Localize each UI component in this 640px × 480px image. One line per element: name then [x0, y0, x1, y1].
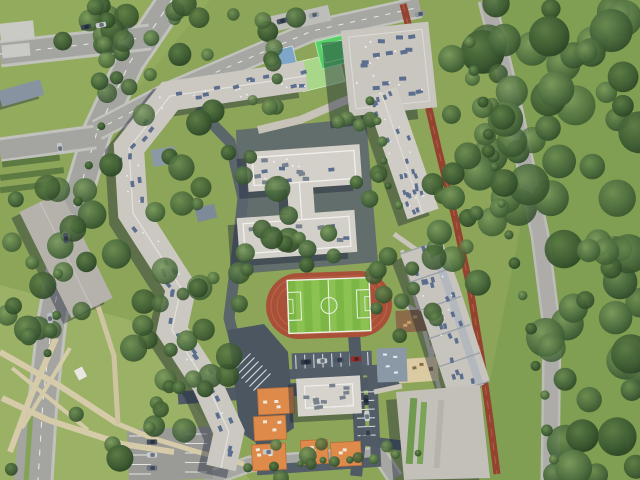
- building-northeast-ac-units-2: [378, 39, 385, 43]
- site-plan-render: [0, 0, 640, 480]
- trees-courtyard-17: [265, 176, 291, 202]
- trees-topleft-lawn-1: [97, 37, 113, 53]
- trees-top-band-15: [98, 51, 115, 68]
- trees-center-east-5: [407, 282, 420, 295]
- trees-east-strip-5: [490, 169, 518, 197]
- trees-park-16: [216, 343, 243, 370]
- trees-courts-west-5: [272, 73, 283, 84]
- trees-forest-northeast-36: [612, 95, 634, 117]
- tree-row-east-road-2: [478, 97, 489, 108]
- trees-snake-tail-west-3: [197, 381, 214, 398]
- trees-forest-northeast-35: [529, 16, 570, 57]
- building-snake-ac-units-34: [168, 318, 172, 324]
- trees-warehouse-8: [76, 252, 97, 273]
- trees-courtyard-8: [221, 145, 236, 160]
- trees-east-strip-15: [469, 206, 483, 220]
- playground-orange-1-equipment-0: [274, 400, 278, 403]
- playground-beige-equipment-0: [420, 363, 424, 366]
- trees-park-5: [143, 421, 155, 433]
- kindergarten-ac-units-2: [321, 400, 327, 404]
- tree-row-slab-west-0: [365, 96, 374, 105]
- trees-warehouse-3: [72, 302, 90, 320]
- trees-courtyard-21: [145, 202, 165, 222]
- playground-gray: [376, 347, 407, 382]
- tree-row-south-road-2: [297, 461, 304, 468]
- trees-school-south-5: [241, 263, 254, 276]
- building-snake-ac-units-45: [137, 177, 141, 183]
- trees-east-strip-19: [422, 245, 447, 270]
- trees-courtyard-23: [152, 258, 179, 285]
- tree-row-slab-west-1: [373, 117, 381, 125]
- building-northeast-ac-units-13: [362, 60, 369, 64]
- playground-gray-marks-1: [383, 353, 387, 355]
- viewport: [0, 0, 640, 480]
- trees-courts-west-4: [262, 99, 278, 115]
- tree-row-south-road-6: [391, 450, 400, 459]
- trees-courtyard-19: [170, 191, 194, 215]
- trees-top-band-2: [255, 12, 272, 29]
- trees-forest-northeast-7: [541, 0, 560, 19]
- trees-center-east-4: [392, 328, 407, 343]
- school-ac-units-bottom-4: [296, 224, 303, 228]
- building-snake-ac-units-23: [299, 84, 305, 88]
- trees-east-strip-18: [482, 144, 496, 158]
- trees-courtyard-2: [231, 295, 248, 312]
- trees-top-band-19: [189, 7, 210, 28]
- car-12-glass: [320, 359, 325, 363]
- trees-forest-northeast-30: [608, 62, 639, 93]
- trees-school-east-4: [373, 171, 385, 183]
- trees-forest-northeast-34: [538, 71, 575, 108]
- tree-row-south-road-4: [346, 456, 353, 463]
- trees-school-south-1: [320, 225, 337, 242]
- trees-courtyard-13: [189, 278, 208, 297]
- trees-top-band-9: [227, 8, 240, 21]
- trees-forest-southeast-6: [554, 368, 577, 391]
- car-15-glass: [364, 398, 368, 403]
- trees-park-19: [172, 418, 196, 442]
- trees-warehouse-16: [102, 239, 131, 268]
- trees-warehouse-19: [5, 297, 22, 314]
- tree-row-left-road-4: [53, 269, 63, 279]
- trees-courts-west-0: [247, 95, 257, 105]
- trees-courtyard-7: [186, 110, 212, 136]
- trees-courtyard-15: [279, 206, 298, 225]
- playground-gray-marks-3: [394, 371, 398, 373]
- tree-row-left-road-0: [98, 122, 106, 130]
- trees-school-south-9: [260, 226, 283, 249]
- trees-forest-northeast-38: [599, 180, 636, 217]
- car-13: [334, 357, 345, 363]
- trees-park-15: [132, 315, 153, 336]
- trees-topleft-lawn-5: [113, 30, 135, 52]
- trees-warehouse-1: [25, 256, 39, 270]
- trees-east-strip-13: [490, 105, 515, 130]
- tree-row-east-road-7: [509, 257, 521, 269]
- trees-courtyard-5: [177, 288, 190, 301]
- car-7: [47, 313, 53, 324]
- trees-park-12: [43, 323, 58, 338]
- kindergarten-ac-units-0: [303, 396, 309, 400]
- trees-courts-west-3: [265, 55, 282, 72]
- tree-row-east-road-3: [483, 129, 494, 140]
- playground-orange-2-equipment-0: [263, 420, 267, 423]
- trees-center-east-7: [369, 261, 387, 279]
- tree-row-slab-west-3: [380, 157, 388, 165]
- trees-snake-tail-west-2: [153, 401, 169, 417]
- trees-snake-tail-west-4: [173, 381, 186, 394]
- trees-forest-southeast-22: [577, 387, 602, 412]
- car-11-glass: [304, 360, 309, 364]
- tree-row-east-road-10: [531, 361, 541, 371]
- trees-forest-northeast-18: [535, 115, 561, 141]
- school-ac-units-top-6: [296, 170, 303, 174]
- trees-warehouse-18: [99, 153, 122, 176]
- trees-forest-southeast-23: [537, 333, 566, 362]
- tree-row-left-road-5: [52, 311, 61, 320]
- trees-center-east-8: [371, 302, 383, 314]
- trees-south-band-1: [381, 440, 393, 452]
- trees-topleft-lawn-3: [91, 72, 109, 90]
- trees-courtyard-10: [133, 104, 155, 126]
- kindergarten-ac-units-1: [343, 391, 349, 395]
- trees-topleft-lawn-7: [110, 71, 123, 84]
- trees-school-south-0: [326, 249, 341, 264]
- car-11: [301, 359, 312, 365]
- trees-school-south-6: [299, 257, 314, 272]
- trees-courtyard-11: [191, 177, 212, 198]
- trees-topleft-lawn-6: [144, 68, 157, 81]
- car-15: [363, 395, 369, 406]
- trees-school-east-6: [350, 176, 363, 189]
- trees-east-strip-22: [440, 185, 465, 210]
- trees-center-east-0: [375, 286, 393, 304]
- trees-forest-northeast-26: [580, 154, 606, 180]
- parking-ticks-east-4: [357, 426, 375, 427]
- trees-east-strip-24: [427, 220, 452, 245]
- trees-courtyard-14: [234, 166, 253, 185]
- trees-south-band-2: [270, 439, 282, 451]
- trees-top-band-21: [168, 43, 191, 66]
- building-northeast-ac-units-12: [409, 92, 416, 96]
- car-12: [317, 358, 328, 364]
- car-6: [63, 233, 69, 244]
- trees-south-band-5: [305, 458, 316, 469]
- playground-orange-2: [253, 415, 286, 441]
- school-ac-units-top-blue-3: [328, 167, 334, 171]
- tree-row-slab-west-2: [377, 136, 387, 146]
- tree-row-east-road-0: [464, 36, 476, 48]
- concrete-pad-topleft-a: [0, 20, 35, 41]
- building-northeast-ac-units-14: [399, 76, 406, 80]
- building-northeast-ac-units-11: [396, 35, 403, 39]
- car-17: [365, 427, 371, 438]
- car-18-glass: [266, 450, 271, 454]
- car-6-glass: [64, 236, 68, 241]
- playground-orange-5-equipment-1: [343, 448, 347, 451]
- school-ac-units-top-blue-2: [279, 167, 285, 171]
- trees-top-band-13: [286, 7, 306, 27]
- road-west-lower: [0, 137, 95, 150]
- trees-school-south-8: [236, 243, 255, 262]
- car-18: [263, 449, 274, 455]
- tree-row-slab-west-4: [385, 183, 392, 190]
- trees-park-2: [20, 328, 38, 346]
- car-10: [147, 465, 157, 470]
- trees-warehouse-12: [2, 232, 22, 252]
- playground-mulch-equipment-1: [403, 324, 407, 327]
- playground-orange-3-equipment-2: [257, 453, 261, 456]
- trees-park-7: [69, 407, 84, 422]
- trees-warehouse-17: [8, 191, 24, 207]
- trees-east-strip-6: [442, 105, 461, 124]
- trees-courtyard-6: [151, 295, 169, 313]
- trees-forest-southeast-24: [598, 417, 637, 456]
- tree-row-east-road-8: [518, 291, 528, 301]
- car-14: [351, 356, 362, 362]
- playground-gray-marks-2: [386, 365, 390, 367]
- trees-park-17: [5, 463, 18, 476]
- tree-row-east-road-12: [541, 425, 553, 437]
- trees-east-strip-2: [438, 45, 466, 73]
- car-13-glass: [337, 358, 342, 362]
- tree-row-east-road-4: [490, 162, 499, 171]
- tree-row-east-road-9: [525, 323, 537, 335]
- trees-park-13: [120, 335, 147, 362]
- trees-school-south-7: [298, 240, 316, 258]
- tree-row-east-road-1: [469, 65, 480, 76]
- kindergarten-ac-units-4: [329, 384, 335, 388]
- trees-school-east-7: [332, 115, 345, 128]
- trees-east-strip-14: [465, 270, 491, 296]
- playground-orange-1-equipment-2: [263, 401, 267, 404]
- trees-top-band-6: [53, 32, 72, 51]
- trees-warehouse-14: [29, 272, 56, 299]
- trees-center-east-2: [394, 293, 410, 309]
- trees-forest-southeast-14: [599, 301, 633, 335]
- playground-gray-marks-0: [393, 356, 397, 358]
- kindergarten-ac-units-8: [343, 386, 349, 390]
- trees-courtyard-12: [244, 150, 258, 164]
- tree-row-south-road-5: [369, 454, 379, 464]
- trees-center-east-3: [405, 262, 419, 276]
- trees-topleft-lawn-4: [121, 79, 138, 96]
- trees-forest-northeast-28: [488, 24, 521, 57]
- tree-row-east-road-5: [497, 200, 505, 208]
- school-ac-units-top-0: [261, 158, 268, 162]
- car-5-glass: [58, 146, 63, 151]
- playground-orange-5-equipment-0: [339, 451, 343, 454]
- playground-mulch-equipment-0: [407, 321, 411, 324]
- tree-row-east-road-6: [504, 230, 513, 239]
- trees-east-strip-11: [428, 311, 443, 326]
- tree-row-south-road-3: [320, 457, 327, 464]
- trees-courtyard-9: [207, 272, 219, 284]
- building-snake-ac-units-1: [128, 153, 132, 159]
- trees-top-band-16: [143, 30, 159, 46]
- building-northeast-ac-units-9: [373, 86, 380, 91]
- tree-row-left-road-1: [85, 161, 93, 169]
- school-ac-units-top-2: [303, 177, 310, 181]
- trees-courtyard-20: [191, 198, 204, 211]
- trees-forest-southeast-21: [576, 291, 594, 309]
- trees-snake-tail-west-5: [164, 343, 178, 357]
- trees-school-east-5: [361, 190, 379, 208]
- car-9: [147, 452, 157, 457]
- trees-park-11: [106, 445, 133, 472]
- trees-top-band-17: [201, 48, 214, 61]
- car-14-glass: [354, 357, 359, 361]
- building-northeast-ac-units-8: [405, 48, 412, 52]
- trees-east-strip-23: [442, 162, 465, 185]
- trees-forest-southeast-26: [577, 239, 600, 262]
- trees-park-10: [192, 319, 214, 341]
- tree-row-left-road-2: [73, 197, 83, 207]
- building-snake-vents-1: [193, 95, 195, 97]
- car-10-glass: [150, 466, 154, 470]
- building-snake-ac-units-32: [140, 197, 144, 203]
- tree-row-south-road-0: [243, 463, 252, 472]
- building-northeast-ac-units-0: [382, 81, 389, 85]
- building-snake-ac-units-42: [196, 95, 202, 99]
- trees-forest-northeast-32: [575, 41, 597, 63]
- trees-east-strip-25: [459, 239, 474, 254]
- trees-south-band-7: [329, 456, 340, 467]
- trees-courtyard-22: [168, 154, 194, 180]
- trees-south-band-0: [315, 438, 328, 451]
- car-9-glass: [150, 453, 154, 457]
- tree-row-south-road-1: [269, 462, 279, 472]
- car-16-glass: [365, 414, 369, 419]
- tree-row-south-road-7: [415, 450, 422, 457]
- tree-row-east-road-13: [549, 455, 559, 465]
- trees-south-band-3: [353, 452, 364, 463]
- car-17-glass: [366, 430, 370, 435]
- car-7-glass: [48, 316, 52, 321]
- tree-row-east-road-11: [540, 390, 549, 399]
- car-8-glass: [150, 440, 154, 444]
- trees-warehouse-11: [35, 175, 61, 201]
- school-ac-units-bottom-blue-2: [343, 236, 349, 240]
- trees-forest-southeast-5: [566, 419, 599, 452]
- car-8: [147, 439, 157, 444]
- tree-row-slab-west-5: [395, 201, 403, 209]
- trees-forest-northeast-3: [542, 145, 576, 179]
- car-16: [364, 411, 370, 422]
- playground-orange-2-equipment-2: [272, 428, 276, 431]
- school-ac-units-bottom-7: [337, 238, 344, 242]
- playground-orange-1-equipment-1: [277, 405, 281, 408]
- tree-row-left-road-6: [44, 349, 52, 357]
